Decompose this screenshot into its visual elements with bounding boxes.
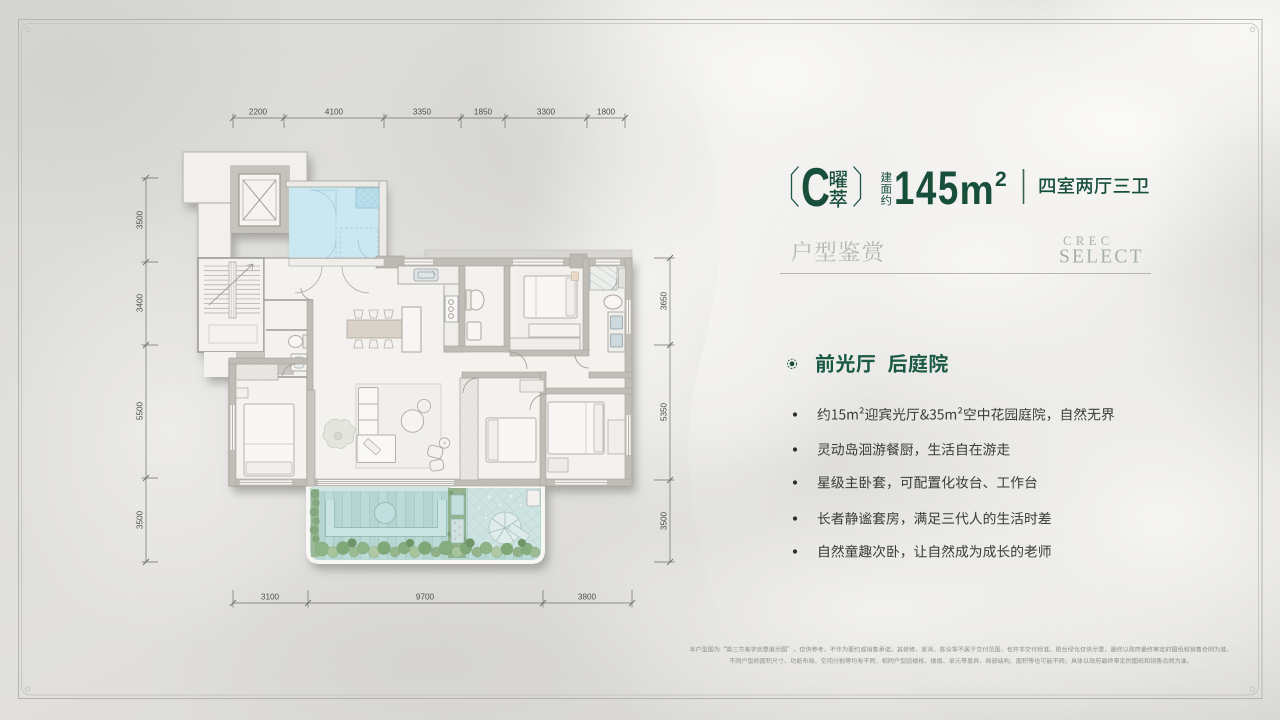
svg-text:3800: 3800 <box>578 593 597 602</box>
svg-text:3100: 3100 <box>261 593 280 602</box>
svg-text:3650: 3650 <box>660 291 669 310</box>
svg-text:3500: 3500 <box>136 510 145 529</box>
svg-text:4100: 4100 <box>325 108 344 117</box>
svg-text:3350: 3350 <box>413 108 432 117</box>
svg-text:1850: 1850 <box>474 108 493 117</box>
svg-text:3500: 3500 <box>660 511 669 530</box>
svg-text:3500: 3500 <box>136 210 145 229</box>
svg-text:1800: 1800 <box>597 108 616 117</box>
svg-text:9700: 9700 <box>416 593 435 602</box>
svg-text:C: C <box>801 157 830 219</box>
svg-text:3300: 3300 <box>537 108 556 117</box>
svg-text:5500: 5500 <box>136 401 145 420</box>
svg-text:3400: 3400 <box>136 293 145 312</box>
svg-text:2: 2 <box>995 168 1007 191</box>
svg-text:SELECT: SELECT <box>1059 247 1144 268</box>
svg-text:2200: 2200 <box>249 108 268 117</box>
svg-text:m: m <box>960 168 994 213</box>
svg-text:145: 145 <box>894 162 960 214</box>
svg-text:5350: 5350 <box>660 402 669 421</box>
